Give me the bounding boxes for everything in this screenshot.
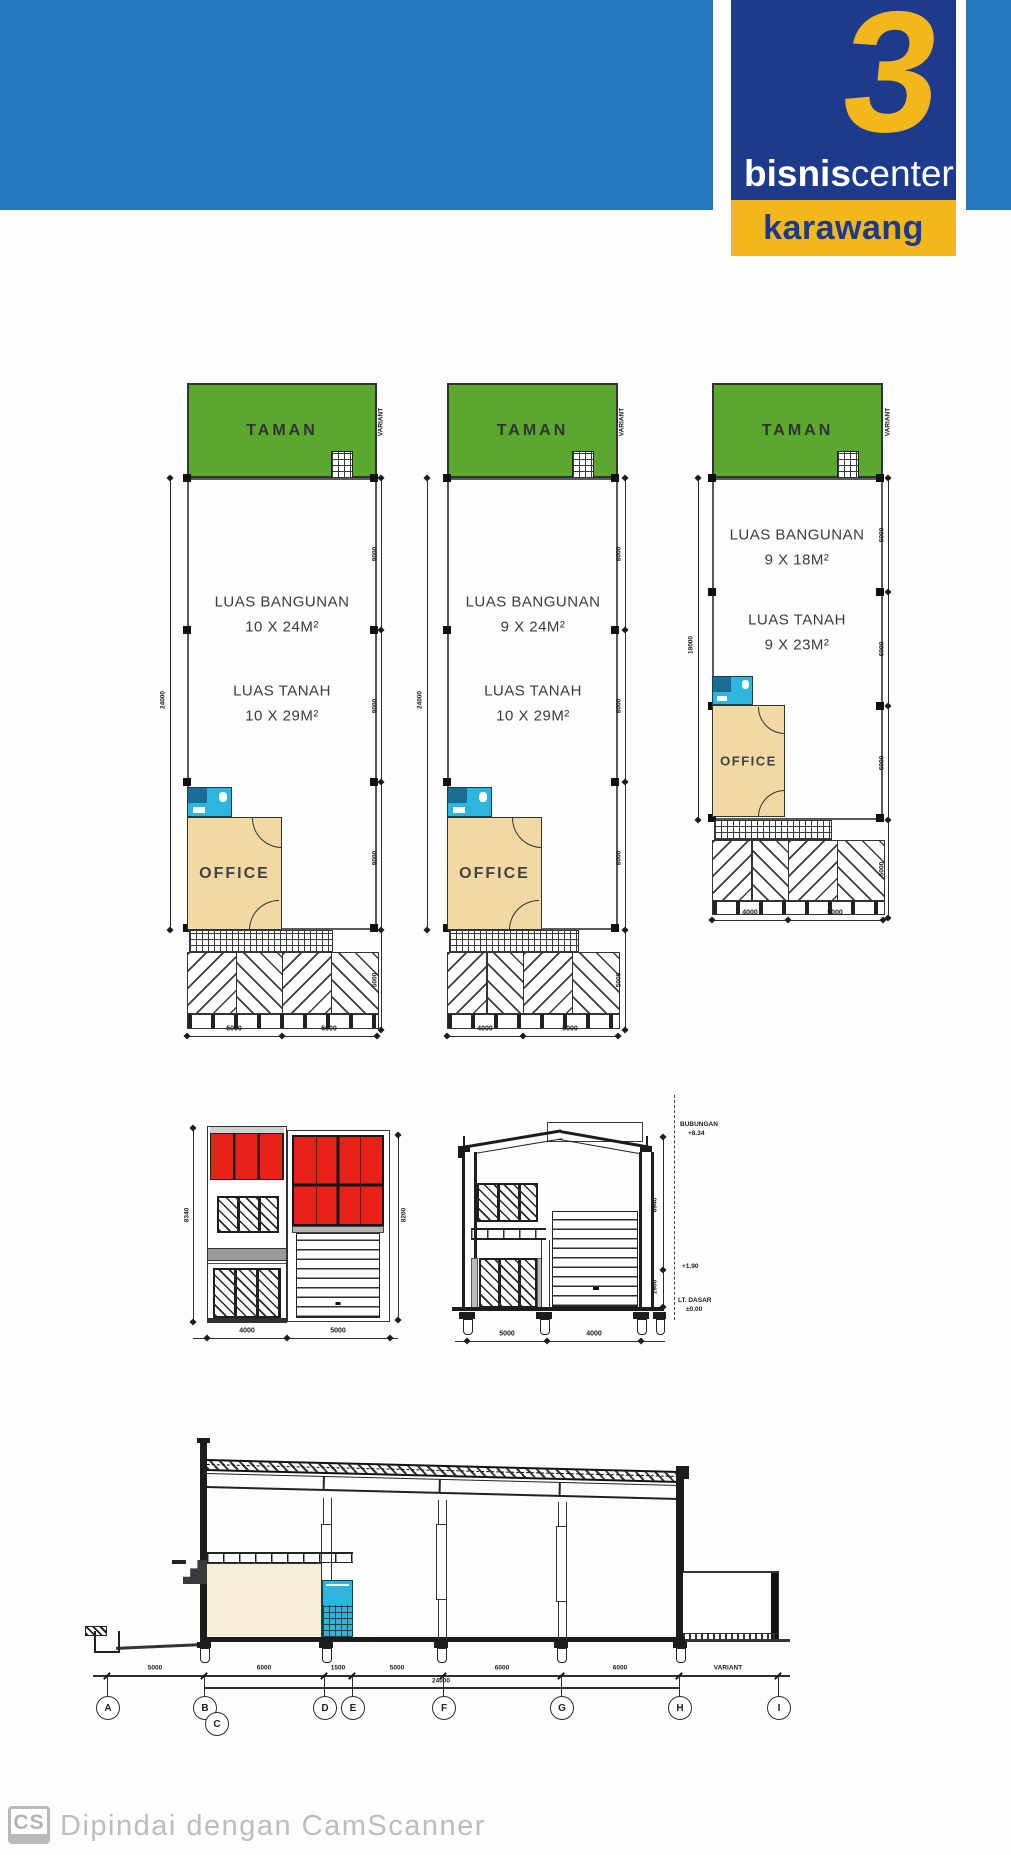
decoration xyxy=(427,478,428,930)
decoration xyxy=(322,1648,332,1663)
decoration xyxy=(463,1337,470,1344)
decoration xyxy=(471,1228,546,1240)
decoration xyxy=(278,1032,285,1039)
decoration xyxy=(336,1302,341,1305)
header-band-left xyxy=(0,0,713,210)
drain-grate-icon xyxy=(837,451,859,479)
decoration xyxy=(386,1334,393,1341)
decoration xyxy=(183,778,191,786)
building-area-label: LUAS BANGUNAN xyxy=(730,527,865,544)
mid-level-value: +1.90 xyxy=(682,1263,698,1270)
decoration xyxy=(219,792,227,802)
decoration xyxy=(394,1316,401,1323)
span-dim: 5000 xyxy=(390,1665,404,1672)
decoration xyxy=(326,1584,349,1586)
decoration xyxy=(373,1032,380,1039)
segment-dim: 8000 xyxy=(616,699,623,713)
front-dim: 5000 xyxy=(321,1026,337,1033)
porch-hatch xyxy=(189,930,333,953)
decoration xyxy=(189,1318,196,1325)
decoration xyxy=(116,1643,204,1649)
decoration xyxy=(611,474,619,482)
scale-ticks xyxy=(712,900,885,915)
paving-dim: 5000 xyxy=(372,973,379,987)
building-area-size: 9 X 24M² xyxy=(501,619,566,636)
decoration xyxy=(193,1338,398,1339)
upper-window xyxy=(217,1196,279,1233)
decoration xyxy=(292,1226,384,1233)
toilet-section xyxy=(322,1580,353,1638)
drain-grate-icon xyxy=(572,451,594,479)
elevation-left-bay xyxy=(207,1126,287,1323)
floor-value: ±0.00 xyxy=(686,1306,702,1313)
lower-window xyxy=(213,1268,281,1318)
decoration xyxy=(789,841,837,901)
decoration xyxy=(204,1676,205,1696)
scale-ticks xyxy=(187,1013,379,1029)
decoration xyxy=(283,953,331,1014)
land-area-label: LUAS TANAH xyxy=(748,612,846,629)
decoration xyxy=(183,626,191,634)
section-lower-window xyxy=(479,1258,537,1308)
decoration xyxy=(443,1676,444,1696)
decoration xyxy=(208,1263,286,1264)
building-area-label: LUAS BANGUNAN xyxy=(215,594,350,611)
decoration xyxy=(653,1312,666,1319)
decoration xyxy=(536,1312,552,1319)
decoration xyxy=(11,1834,47,1841)
overall-dim: 24000 xyxy=(417,691,424,709)
grid-bubble: A xyxy=(96,1696,120,1720)
decoration xyxy=(621,626,628,633)
decoration xyxy=(172,1560,186,1564)
decoration xyxy=(524,953,572,1014)
logo-city: karawang xyxy=(763,209,924,248)
segment-dim: 8000 xyxy=(372,547,379,561)
decoration xyxy=(323,1581,352,1606)
decoration xyxy=(659,1266,666,1273)
decoration xyxy=(471,1258,478,1308)
watermark-text: Dipindai dengan CamScanner xyxy=(60,1810,486,1843)
logo-box: 3 bisniscenter xyxy=(731,0,956,200)
paving-panel xyxy=(187,952,284,1015)
paving-panel xyxy=(523,952,620,1015)
decoration xyxy=(656,1319,665,1335)
decoration xyxy=(107,1676,108,1696)
decoration xyxy=(486,953,488,1014)
toilet-unit xyxy=(187,787,232,817)
floor-label: LT. DASAR xyxy=(678,1297,711,1304)
decoration xyxy=(611,626,619,634)
taman-label: TAMAN xyxy=(497,422,569,440)
front-dim: 5000 xyxy=(562,1026,578,1033)
decoration xyxy=(593,1287,599,1290)
decoration xyxy=(541,1240,550,1308)
building-area-label: LUAS BANGUNAN xyxy=(466,594,601,611)
decoration xyxy=(637,1319,647,1335)
decoration xyxy=(188,788,207,803)
decoration xyxy=(377,778,384,785)
decoration xyxy=(316,1137,317,1224)
decoration xyxy=(183,1032,190,1039)
decoration xyxy=(884,474,891,481)
decoration xyxy=(452,1307,664,1311)
decoration xyxy=(876,474,884,482)
decoration xyxy=(742,680,749,689)
decoration xyxy=(166,474,173,481)
mezzanine-railing xyxy=(207,1552,353,1563)
paving-panel xyxy=(712,840,790,902)
decoration xyxy=(323,1605,352,1637)
decoration xyxy=(717,696,727,701)
paving-panel xyxy=(282,952,379,1015)
drain-grate-icon xyxy=(331,451,353,479)
overall-dim: 18000 xyxy=(688,636,695,654)
section-width-dim: 4000 xyxy=(586,1331,602,1338)
paving-dim: 5000 xyxy=(616,973,623,987)
decoration xyxy=(837,841,885,901)
decoration xyxy=(659,1133,666,1140)
ridge-label: BUBUNGAN xyxy=(680,1121,718,1128)
brand-bold: bisnis xyxy=(744,153,851,194)
building-area-size: 9 X 18M² xyxy=(765,552,830,569)
decoration xyxy=(708,588,716,596)
decoration xyxy=(884,816,891,823)
variant-label: VARIANT xyxy=(378,408,385,436)
span-dim: VARIANT xyxy=(714,1665,742,1672)
section-upper-window xyxy=(477,1183,538,1222)
decoration xyxy=(713,841,751,901)
span-dim: 5000 xyxy=(148,1665,162,1672)
decoration xyxy=(674,1095,675,1320)
decoration xyxy=(423,926,430,933)
elevation-height-dim: 8200 xyxy=(401,1208,408,1222)
rear-annex xyxy=(683,1571,779,1640)
elevation-width-dim: 5000 xyxy=(330,1328,346,1335)
decoration xyxy=(443,778,451,786)
decoration: bisniscenter xyxy=(744,155,954,192)
span-dim: 6000 xyxy=(613,1665,627,1672)
decoration xyxy=(614,1032,621,1039)
elevation-right-bay xyxy=(287,1130,390,1322)
decoration xyxy=(394,1131,401,1138)
decoration xyxy=(448,953,486,1014)
decoration xyxy=(751,841,753,901)
toilet-unit xyxy=(447,787,492,817)
office-label: OFFICE xyxy=(199,865,270,883)
paving-panel xyxy=(447,952,525,1015)
span-dim: 1500 xyxy=(331,1665,345,1672)
lower-dim: 1900 xyxy=(652,1280,659,1294)
decoration xyxy=(611,778,619,786)
decoration xyxy=(323,1477,325,1489)
building-area-size: 10 X 24M² xyxy=(245,619,319,636)
decoration xyxy=(621,474,628,481)
logo-number: 3 xyxy=(835,0,949,158)
decoration xyxy=(377,626,384,633)
decoration xyxy=(663,1137,664,1307)
ridge-value: +8.34 xyxy=(688,1130,704,1137)
total-dim: 24000 xyxy=(432,1678,450,1685)
decoration xyxy=(352,1676,353,1696)
decoration xyxy=(324,1676,325,1696)
decoration xyxy=(463,1136,465,1147)
decoration xyxy=(443,1032,450,1039)
grid-bubble: I xyxy=(767,1696,791,1720)
decoration xyxy=(876,814,884,822)
roller-shutter xyxy=(296,1233,380,1318)
decoration xyxy=(876,702,884,710)
decoration xyxy=(437,1648,447,1663)
decoration xyxy=(85,1626,107,1636)
decoration xyxy=(888,478,889,918)
segment-dim: 8000 xyxy=(372,699,379,713)
decoration: G xyxy=(558,1703,566,1714)
decoration xyxy=(679,1676,680,1696)
paving-panel xyxy=(788,840,885,902)
decoration xyxy=(561,1676,562,1696)
decoration xyxy=(543,1337,550,1344)
overall-dim: 24000 xyxy=(160,691,167,709)
elevation-width-dim: 4000 xyxy=(239,1328,255,1335)
decoration: F xyxy=(441,1703,447,1714)
decoration xyxy=(443,626,451,634)
decoration xyxy=(751,841,789,901)
taman-label: TAMAN xyxy=(246,422,318,440)
decoration xyxy=(443,474,451,482)
land-area-label: LUAS TANAH xyxy=(233,683,331,700)
segment-dim: 8000 xyxy=(372,851,379,865)
decoration xyxy=(447,1036,618,1037)
decoration xyxy=(436,1524,447,1600)
scale-ticks xyxy=(447,1013,620,1029)
decoration xyxy=(713,677,731,692)
toilet-unit xyxy=(712,676,753,705)
grid-bubble: E xyxy=(341,1696,365,1720)
grid-bubble: F xyxy=(432,1696,456,1720)
paving-dim: 5000 xyxy=(879,862,886,876)
decoration xyxy=(455,1341,665,1342)
variant-label: VARIANT xyxy=(885,408,892,436)
land-area-size: 9 X 23M² xyxy=(765,637,830,654)
office-section-fill xyxy=(207,1563,322,1638)
decoration: E xyxy=(350,1703,357,1714)
front-dim: 5000 xyxy=(226,1026,242,1033)
decoration xyxy=(283,1334,290,1341)
brand-light: center xyxy=(851,153,954,194)
decoration xyxy=(448,788,467,803)
decoration xyxy=(876,588,884,596)
porch-hatch xyxy=(714,820,832,840)
stair-block xyxy=(183,1560,207,1584)
section-roller-shutter xyxy=(552,1211,638,1307)
decoration xyxy=(637,1337,644,1344)
grid-bubble: C xyxy=(205,1712,229,1736)
decoration: B xyxy=(201,1703,208,1714)
decoration xyxy=(337,1137,340,1224)
decoration xyxy=(189,1124,196,1131)
decoration: D xyxy=(321,1703,328,1714)
decoration xyxy=(771,1573,778,1640)
decoration xyxy=(559,1483,561,1495)
decoration xyxy=(236,953,238,1014)
segment-dim: 6000 xyxy=(879,756,886,770)
decoration xyxy=(694,474,701,481)
segment-dim: 6000 xyxy=(879,642,886,656)
decoration xyxy=(183,474,191,482)
decoration xyxy=(479,792,487,802)
decoration: A xyxy=(104,1703,111,1714)
decoration xyxy=(381,478,382,1030)
decoration xyxy=(621,1026,628,1033)
decoration xyxy=(200,1648,210,1663)
logo-city-bar: karawang xyxy=(731,200,956,256)
segment-dim: 8000 xyxy=(616,851,623,865)
office-label: OFFICE xyxy=(720,754,777,769)
land-area-size: 10 X 29M² xyxy=(245,708,319,725)
decoration xyxy=(778,1676,779,1696)
camscanner-badge-icon: CS xyxy=(8,1806,50,1844)
elevation-height-dim: 8340 xyxy=(184,1208,191,1222)
decoration xyxy=(331,953,333,1014)
decoration xyxy=(784,916,791,923)
decoration xyxy=(621,926,628,933)
decoration xyxy=(698,478,699,820)
decoration xyxy=(646,1136,648,1147)
decoration xyxy=(204,1687,679,1689)
decoration xyxy=(377,474,384,481)
decoration xyxy=(557,1648,567,1663)
decoration xyxy=(208,1318,286,1322)
decoration xyxy=(236,953,284,1014)
decoration xyxy=(540,1319,550,1335)
span-dim: 6000 xyxy=(495,1665,509,1672)
decoration xyxy=(203,1334,210,1341)
decoration xyxy=(633,1312,649,1319)
front-dim: 5000 xyxy=(827,910,843,917)
span-dim: 6000 xyxy=(257,1665,271,1672)
front-dim: 4000 xyxy=(742,910,758,917)
taman-label: TAMAN xyxy=(762,422,834,440)
decoration xyxy=(884,702,891,709)
decoration xyxy=(884,588,891,595)
land-area-label: LUAS TANAH xyxy=(484,683,582,700)
decoration xyxy=(556,1526,567,1602)
decoration xyxy=(439,1480,441,1492)
decoration xyxy=(370,924,378,932)
decoration xyxy=(572,953,574,1014)
decoration xyxy=(685,1639,790,1642)
badge-text: CS xyxy=(13,1811,44,1835)
decoration xyxy=(193,1128,194,1324)
decoration: I xyxy=(778,1703,781,1714)
header-band-right xyxy=(966,0,1011,210)
decoration: H xyxy=(676,1703,683,1714)
decoration xyxy=(463,1319,473,1335)
grid-bubble: H xyxy=(668,1696,692,1720)
land-area-size: 10 X 29M² xyxy=(496,708,570,725)
decoration xyxy=(712,920,883,921)
decoration xyxy=(377,1026,384,1033)
decoration xyxy=(837,841,839,901)
decoration xyxy=(188,953,236,1014)
decoration xyxy=(208,1248,286,1261)
front-dim: 4000 xyxy=(477,1026,493,1033)
decoration xyxy=(694,816,701,823)
decoration xyxy=(708,916,715,923)
segment-dim: 6000 xyxy=(879,528,886,542)
scanned-brochure-page: 3 bisniscenter karawang TAMAN VARIANT LU… xyxy=(0,0,1011,1855)
decoration xyxy=(193,807,205,813)
red-glass-band xyxy=(210,1133,284,1180)
decoration xyxy=(294,1183,382,1186)
decoration xyxy=(453,807,465,813)
grid-bubble: D xyxy=(313,1696,337,1720)
decoration xyxy=(708,474,716,482)
section-width-dim: 5000 xyxy=(499,1331,515,1338)
decoration xyxy=(166,926,173,933)
decoration: C xyxy=(213,1719,220,1730)
red-glass-grid xyxy=(292,1135,384,1226)
decoration xyxy=(676,1648,686,1663)
decoration xyxy=(519,1032,526,1039)
decoration xyxy=(377,926,384,933)
decoration xyxy=(398,1135,399,1320)
decoration xyxy=(170,478,171,930)
decoration xyxy=(360,1137,361,1224)
height-dim: 6940 xyxy=(652,1198,659,1212)
variant-label: VARIANT xyxy=(619,408,626,436)
decoration xyxy=(572,953,620,1014)
segment-dim: 8000 xyxy=(616,547,623,561)
decoration xyxy=(625,478,626,1030)
office-label: OFFICE xyxy=(459,865,530,883)
decoration xyxy=(611,924,619,932)
grid-bubble: G xyxy=(550,1696,574,1720)
decoration xyxy=(621,778,628,785)
decoration xyxy=(423,474,430,481)
decoration xyxy=(486,953,524,1014)
porch-hatch xyxy=(449,930,579,953)
decoration xyxy=(459,1312,475,1319)
